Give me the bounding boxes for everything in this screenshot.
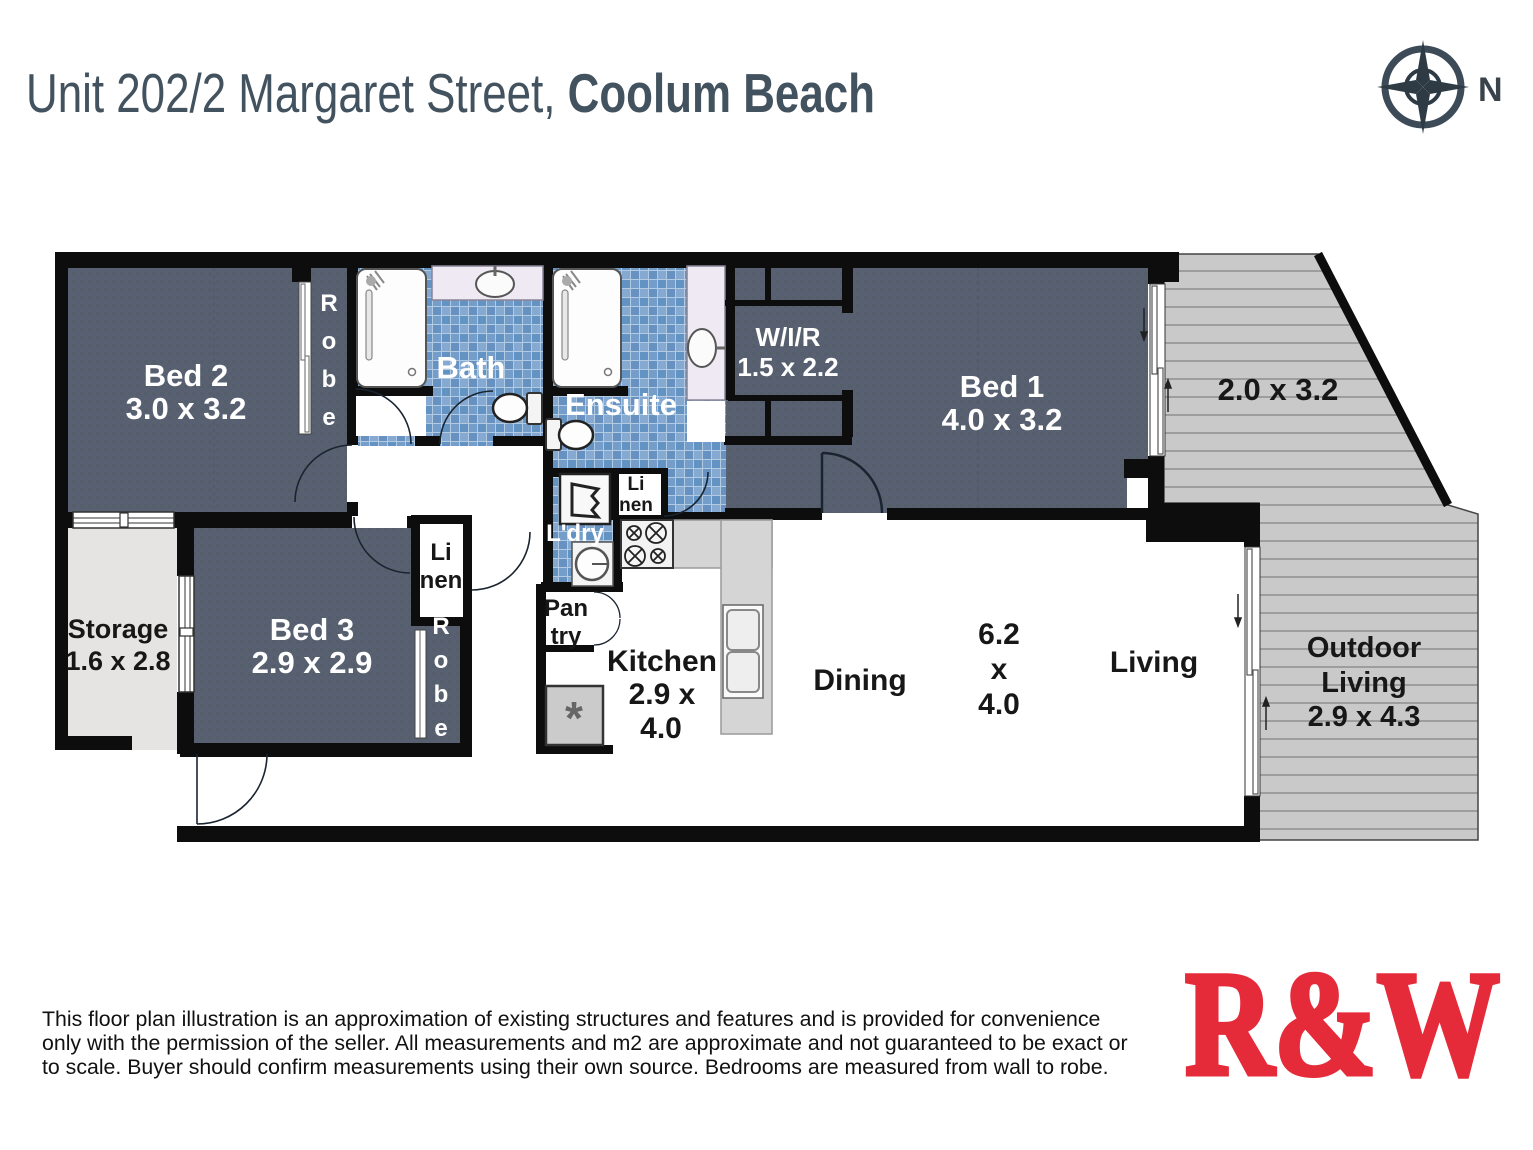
svg-text:o: o <box>434 647 449 674</box>
svg-text:only with the permission of th: only with the permission of the seller. … <box>42 1031 1128 1055</box>
svg-text:W/I/R: W/I/R <box>756 322 821 352</box>
svg-text:x: x <box>991 653 1008 686</box>
svg-text:6.2: 6.2 <box>978 618 1020 651</box>
svg-text:1.6 x 2.8: 1.6 x 2.8 <box>65 646 170 676</box>
svg-text:b: b <box>434 681 449 708</box>
svg-text:e: e <box>434 715 447 742</box>
svg-text:Ensuite: Ensuite <box>565 387 677 422</box>
svg-text:Pan: Pan <box>544 595 588 622</box>
svg-text:Unit 202/2 Margaret Street, Co: Unit 202/2 Margaret Street, Coolum Beach <box>26 62 875 124</box>
svg-text:e: e <box>322 404 335 431</box>
svg-text:Storage: Storage <box>68 614 169 644</box>
svg-text:R: R <box>320 290 337 317</box>
svg-text:2.0 x 3.2: 2.0 x 3.2 <box>1218 372 1339 407</box>
svg-text:Bed 3: Bed 3 <box>270 612 354 647</box>
svg-text:Li: Li <box>628 474 645 495</box>
svg-text:Bed 2: Bed 2 <box>144 358 228 393</box>
svg-text:4.0 x 3.2: 4.0 x 3.2 <box>942 402 1063 437</box>
svg-text:Living: Living <box>1110 646 1198 679</box>
svg-text:try: try <box>551 623 582 650</box>
svg-text:to scale. Buyer should confirm: to scale. Buyer should confirm measureme… <box>42 1055 1109 1079</box>
svg-text:N: N <box>1478 71 1503 109</box>
svg-text:Kitchen: Kitchen <box>607 645 717 678</box>
svg-text:2.9 x: 2.9 x <box>629 678 696 711</box>
svg-text:o: o <box>322 328 337 355</box>
svg-text:*: * <box>565 692 583 744</box>
svg-text:R&W: R&W <box>1185 941 1500 1107</box>
svg-text:1.5 x 2.2: 1.5 x 2.2 <box>737 352 838 382</box>
svg-text:nen: nen <box>619 495 653 516</box>
svg-text:Dining: Dining <box>813 664 906 697</box>
svg-text:Bath: Bath <box>437 350 506 385</box>
svg-text:nen: nen <box>420 567 463 594</box>
svg-text:Bed 1: Bed 1 <box>960 369 1044 404</box>
svg-text:2.9 x 4.3: 2.9 x 4.3 <box>1308 701 1421 733</box>
svg-text:4.0: 4.0 <box>978 688 1020 721</box>
svg-text:Outdoor: Outdoor <box>1307 632 1421 664</box>
svg-text:Li: Li <box>430 539 451 566</box>
svg-text:3.0 x 3.2: 3.0 x 3.2 <box>126 391 247 426</box>
svg-text:4.0: 4.0 <box>640 712 682 745</box>
svg-text:R: R <box>432 613 449 640</box>
svg-text:Living: Living <box>1321 667 1406 699</box>
svg-text:L'dry: L'dry <box>546 520 604 547</box>
svg-text:2.9 x 2.9: 2.9 x 2.9 <box>252 645 373 680</box>
svg-text:b: b <box>322 366 337 393</box>
svg-text:This floor plan illustration i: This floor plan illustration is an appro… <box>42 1007 1100 1031</box>
